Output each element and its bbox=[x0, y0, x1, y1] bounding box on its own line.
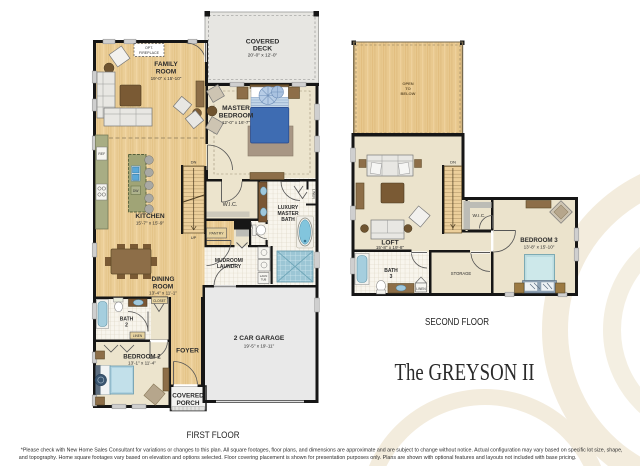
svg-text:19'-5" x 19'-11": 19'-5" x 19'-11" bbox=[244, 344, 275, 349]
svg-text:SECOND FLOOR: SECOND FLOOR bbox=[425, 317, 489, 328]
svg-text:ROOM: ROOM bbox=[156, 69, 177, 76]
svg-text:PORCH: PORCH bbox=[176, 400, 199, 407]
svg-text:12'-0" x 16'-7": 12'-0" x 16'-7" bbox=[222, 120, 251, 125]
svg-text:LINEN: LINEN bbox=[133, 334, 143, 338]
svg-text:FAMILY: FAMILY bbox=[154, 61, 178, 68]
svg-text:DECK: DECK bbox=[253, 46, 272, 53]
svg-text:15'-8" x 19'-8": 15'-8" x 19'-8" bbox=[376, 245, 405, 250]
svg-text:UP: UP bbox=[191, 235, 197, 240]
svg-text:2 CAR GARAGE: 2 CAR GARAGE bbox=[234, 335, 285, 342]
svg-text:COVERED: COVERED bbox=[172, 393, 204, 400]
svg-text:FIREPLACE: FIREPLACE bbox=[139, 51, 160, 55]
svg-text:BEDROOM 3: BEDROOM 3 bbox=[520, 237, 558, 244]
svg-text:3: 3 bbox=[390, 274, 393, 280]
svg-text:DW: DW bbox=[133, 189, 139, 193]
svg-text:OPT.: OPT. bbox=[145, 46, 153, 50]
svg-text:DN: DN bbox=[450, 160, 456, 165]
svg-text:CLOSET: CLOSET bbox=[153, 299, 166, 303]
svg-text:13'-1" x 11'-4": 13'-1" x 11'-4" bbox=[128, 361, 156, 366]
svg-text:DINING: DINING bbox=[151, 276, 174, 283]
svg-text:BEDROOM 2: BEDROOM 2 bbox=[123, 354, 161, 361]
svg-text:LAUNDRY: LAUNDRY bbox=[217, 264, 242, 270]
svg-text:13'-8" x 15'-10": 13'-8" x 15'-10" bbox=[524, 245, 555, 250]
svg-text:W.I.C.: W.I.C. bbox=[223, 202, 238, 208]
svg-text:MASTER: MASTER bbox=[222, 105, 250, 112]
svg-text:BATH: BATH bbox=[281, 217, 295, 223]
svg-text:PANTRY: PANTRY bbox=[209, 232, 224, 236]
svg-text:LINEN: LINEN bbox=[312, 189, 316, 200]
svg-text:*Please check with New Home Sa: *Please check with New Home Sales Consul… bbox=[21, 447, 623, 453]
svg-text:KITCHEN: KITCHEN bbox=[135, 213, 165, 220]
svg-text:REF: REF bbox=[98, 152, 105, 156]
svg-text:15'-7" x 15'-9": 15'-7" x 15'-9" bbox=[136, 221, 165, 226]
svg-text:ROOM: ROOM bbox=[153, 284, 174, 291]
svg-text:BELOW: BELOW bbox=[401, 91, 416, 96]
svg-text:and topography. Home square fo: and topography. Home square footages var… bbox=[19, 455, 577, 461]
svg-text:FOYER: FOYER bbox=[176, 348, 199, 355]
svg-text:20'-0" x 12'-0": 20'-0" x 12'-0" bbox=[248, 53, 278, 59]
svg-text:FIRST FLOOR: FIRST FLOOR bbox=[187, 430, 240, 441]
svg-text:BEDROOM: BEDROOM bbox=[219, 113, 254, 120]
svg-text:LINEN: LINEN bbox=[416, 287, 426, 291]
svg-text:2: 2 bbox=[125, 323, 128, 329]
svg-text:STORAGE: STORAGE bbox=[451, 271, 472, 276]
svg-text:COVERED: COVERED bbox=[246, 39, 280, 46]
svg-text:TUB: TUB bbox=[261, 278, 267, 282]
svg-text:13'-4" x 11'-1": 13'-4" x 11'-1" bbox=[149, 291, 177, 296]
svg-text:19'-0" x 15'-10": 19'-0" x 15'-10" bbox=[151, 76, 182, 81]
svg-text:DN: DN bbox=[191, 160, 197, 165]
svg-text:The GREYSON II: The GREYSON II bbox=[395, 359, 535, 386]
svg-text:W.I.C.: W.I.C. bbox=[472, 213, 485, 219]
